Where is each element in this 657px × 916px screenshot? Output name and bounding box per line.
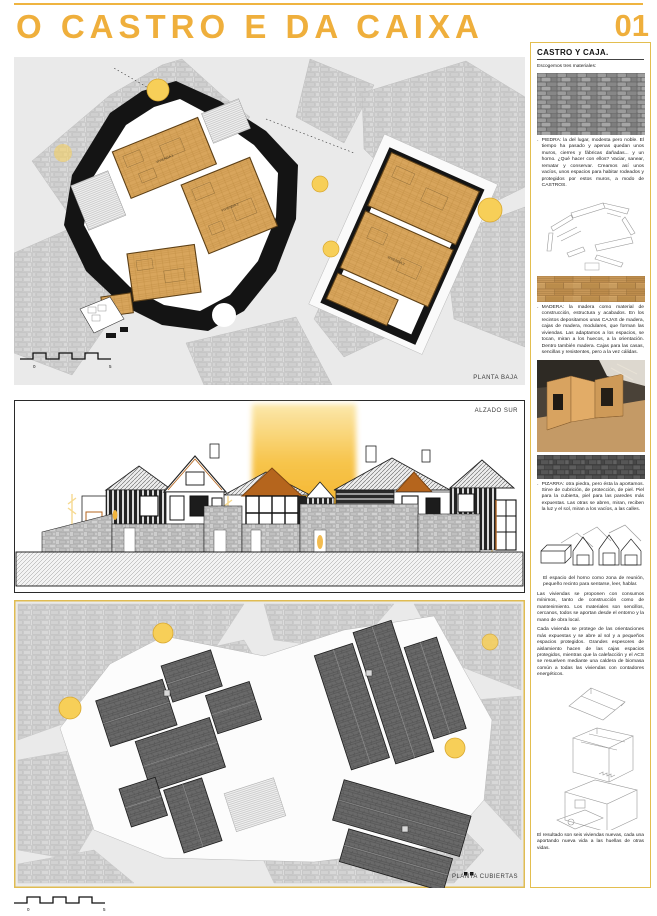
- ground-hatch: [16, 552, 523, 586]
- pizarra-text: PIZARRA: otra piedra, pero ésta la aport…: [542, 482, 644, 514]
- bullet: ·: [537, 305, 539, 357]
- alzado-sur-label: ALZADO SUR: [475, 408, 519, 414]
- page-scale-bar: 0 5: [10, 891, 122, 913]
- bullet: ·: [537, 138, 539, 190]
- resultado-paragraph: El resultado son seis viviendas nuevas, …: [537, 833, 644, 852]
- piedra-paragraph: · PIEDRA: la del lugar, modesta pero nob…: [537, 138, 644, 190]
- room-third: [127, 245, 201, 302]
- planta-cubiertas-drawing: PLANTA CUBIERTAS: [14, 600, 525, 888]
- sidebar-heading: CASTRO Y CAJA.: [537, 48, 644, 60]
- consumos-paragraph: Las viviendas se proponen con consumos m…: [537, 592, 644, 624]
- presentation-board: O CASTRO E DA CAIXA 01: [0, 0, 657, 916]
- planta-baja-label: PLANTA BAJA: [473, 375, 518, 381]
- horno-dome: [212, 303, 236, 327]
- piedra-text: PIEDRA: la del lugar, modesta pero noble…: [542, 138, 644, 190]
- wood-model-photo: [537, 360, 644, 452]
- horno-paragraph: El espacio del horno como zona de reunió…: [537, 576, 644, 589]
- person-figure: [113, 510, 118, 520]
- madera-paragraph: · MADERA: la madera como material de con…: [537, 305, 644, 357]
- sidebar-intro: Escogemos tres materiales:: [537, 64, 644, 69]
- wood-texture-photo: [537, 276, 644, 302]
- header-rule: [14, 3, 643, 5]
- stone-masonry-photo: [537, 73, 644, 135]
- alzado-sur-drawing: ALZADO SUR: [14, 400, 525, 593]
- scale-five: 5: [103, 907, 106, 912]
- planta-cubiertas-panel: PLANTA CUBIERTAS: [14, 600, 525, 888]
- board-title: O CASTRO E DA CAIXA: [16, 8, 484, 46]
- planta-cubiertas-label: PLANTA CUBIERTAS: [452, 874, 518, 880]
- proteccion-paragraph: Cada vivienda se protege de las orientac…: [537, 627, 644, 679]
- castro-sketch: [537, 193, 644, 273]
- planta-baja-panel: VIVIENDA 1 VIVIENDA 2: [14, 57, 525, 385]
- scale-zero: 0: [27, 907, 30, 912]
- alzado-sur-panel: ALZADO SUR: [14, 400, 525, 593]
- sidebar: CASTRO Y CAJA. Escogemos tres materiales…: [530, 42, 651, 888]
- sheet-number: 01: [615, 8, 649, 44]
- exploded-axon-sketch: [537, 682, 644, 830]
- houses-sketch: [537, 517, 644, 573]
- slate-texture-photo: [537, 455, 644, 479]
- madera-text: MADERA: la madera como material de const…: [542, 305, 644, 357]
- pizarra-paragraph: · PIZARRA: otra piedra, pero ésta la apo…: [537, 482, 644, 514]
- bullet: ·: [537, 482, 539, 514]
- planta-baja-drawing: VIVIENDA 1 VIVIENDA 2: [14, 57, 525, 385]
